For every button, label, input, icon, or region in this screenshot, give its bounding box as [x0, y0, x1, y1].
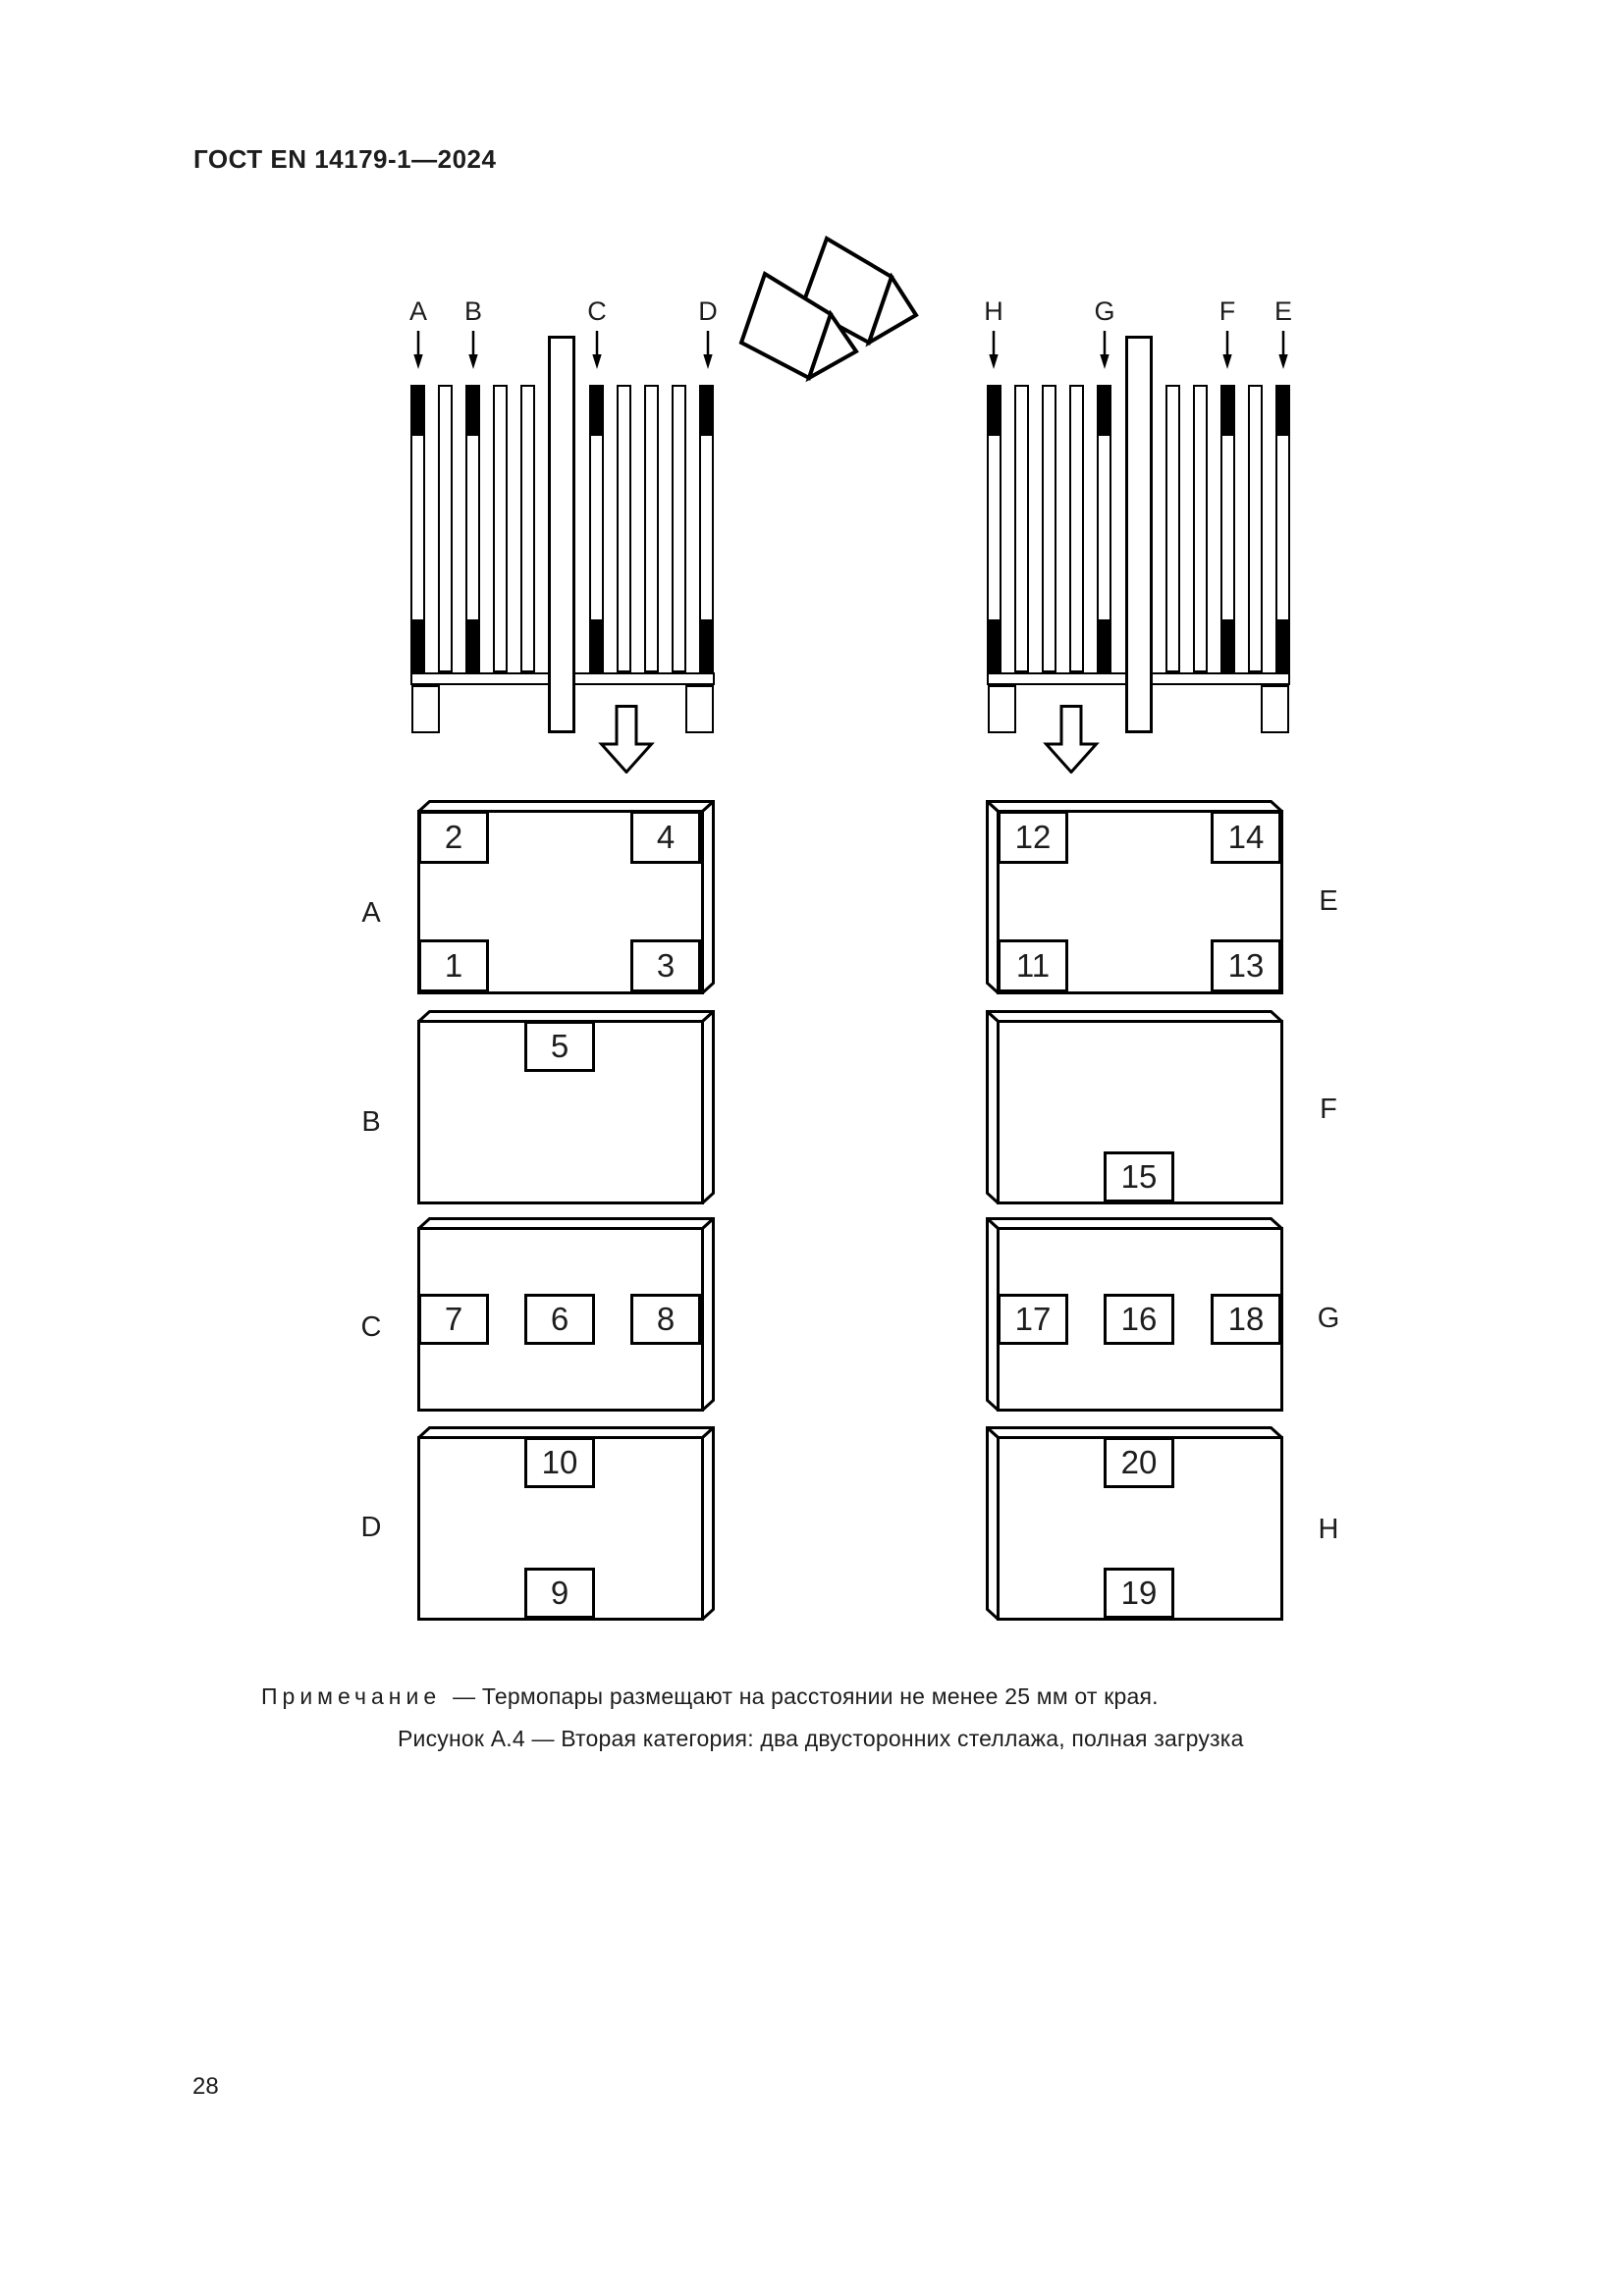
- rack-face-box-c: 7 6 8: [417, 1217, 715, 1412]
- view-direction-arrow-icon: [595, 705, 658, 774]
- thermocouple-square: 15: [1104, 1151, 1174, 1202]
- rack-leg: [1261, 685, 1289, 733]
- rack-leg: [685, 685, 714, 733]
- thermocouple-square: 10: [524, 1437, 595, 1488]
- glass-pane-bar: [493, 385, 508, 672]
- pointer-arrow-icon: [1276, 330, 1290, 369]
- rack-position-label: F: [1208, 296, 1247, 327]
- rack-position-label: C: [577, 296, 617, 327]
- pointer-arrow-icon: [411, 330, 425, 369]
- face-label: E: [1299, 886, 1358, 916]
- rack-face-box-a: 2 4 1 3: [417, 800, 715, 994]
- rack-face-box-h: 20 19: [986, 1426, 1283, 1621]
- thermocouple-square: 12: [998, 811, 1068, 864]
- glass-pane-bar-thermocouple: [1097, 385, 1111, 672]
- thermocouple-square: 5: [524, 1021, 595, 1072]
- rack-divider-post: [1125, 336, 1153, 733]
- glass-pane-bar: [644, 385, 659, 672]
- glass-pane-bar: [1042, 385, 1056, 672]
- figure-note: Примечание— Термопары размещают на расст…: [261, 1683, 1159, 1710]
- glass-pane-bar: [438, 385, 453, 672]
- rack-divider-post: [548, 336, 575, 733]
- glass-pane-bar: [1165, 385, 1180, 672]
- rack-face-box-g: 17 16 18: [986, 1217, 1283, 1412]
- glass-pane-bar-thermocouple: [410, 385, 425, 672]
- pointer-arrow-icon: [987, 330, 1001, 369]
- rack-position-label: H: [974, 296, 1013, 327]
- pointer-arrow-icon: [1220, 330, 1234, 369]
- rack-leg: [988, 685, 1016, 733]
- glass-pane-bar-thermocouple: [699, 385, 714, 672]
- thermocouple-square: 2: [418, 811, 489, 864]
- page-header: ГОСТ EN 14179-1—2024: [193, 144, 496, 175]
- glass-pane-bar: [520, 385, 535, 672]
- pointer-arrow-icon: [590, 330, 604, 369]
- thermocouple-square: 3: [630, 939, 701, 992]
- glass-pane-bar-thermocouple: [465, 385, 480, 672]
- thermocouple-square: 13: [1211, 939, 1281, 992]
- rack-position-label: B: [454, 296, 493, 327]
- rack-position-label: A: [399, 296, 438, 327]
- rack-face-box-d: 10 9: [417, 1426, 715, 1621]
- pointer-arrow-icon: [1098, 330, 1111, 369]
- face-label: F: [1299, 1095, 1358, 1124]
- rack-position-label: E: [1264, 296, 1303, 327]
- pointer-arrow-icon: [466, 330, 480, 369]
- glass-pane-bar-thermocouple: [987, 385, 1001, 672]
- thermocouple-square: 16: [1104, 1294, 1174, 1345]
- thermocouple-square: 11: [998, 939, 1068, 992]
- glass-pane-bar: [1069, 385, 1084, 672]
- glass-pane-bar: [617, 385, 631, 672]
- glass-pane-bar-thermocouple: [589, 385, 604, 672]
- face-label: H: [1299, 1515, 1358, 1544]
- pointer-arrow-icon: [701, 330, 715, 369]
- rack-face-box-b: 5: [417, 1010, 715, 1204]
- rack-leg: [411, 685, 440, 733]
- face-label: D: [342, 1513, 401, 1542]
- rack-position-label: G: [1085, 296, 1124, 327]
- thermocouple-square: 20: [1104, 1437, 1174, 1488]
- figure-caption: Рисунок А.4 — Вторая категория: два двус…: [398, 1726, 1244, 1752]
- rack-position-label: D: [688, 296, 728, 327]
- glass-pane-bar: [1014, 385, 1029, 672]
- face-label: G: [1299, 1304, 1358, 1333]
- glass-pane-bar-thermocouple: [1275, 385, 1290, 672]
- thermocouple-square: 8: [630, 1294, 701, 1345]
- glass-pane-bar-thermocouple: [1220, 385, 1235, 672]
- thermocouple-square: 17: [998, 1294, 1068, 1345]
- leaning-glass-panes-3d-icon: [727, 196, 933, 393]
- rack-face-box-e: 12 14 11 13: [986, 800, 1283, 994]
- glass-pane-bar: [1248, 385, 1263, 672]
- glass-pane-bar: [672, 385, 686, 672]
- thermocouple-square: 14: [1211, 811, 1281, 864]
- document-page: ГОСТ EN 14179-1—2024 A B C D: [0, 0, 1624, 2296]
- view-direction-arrow-icon: [1040, 705, 1103, 774]
- face-label: A: [342, 898, 401, 928]
- note-label: Примечание: [261, 1683, 441, 1709]
- page-number: 28: [192, 2073, 219, 2101]
- rack-face-box-f: 15: [986, 1010, 1283, 1204]
- glass-pane-bar: [1193, 385, 1208, 672]
- thermocouple-square: 7: [418, 1294, 489, 1345]
- face-label: C: [342, 1312, 401, 1342]
- thermocouple-square: 4: [630, 811, 701, 864]
- thermocouple-square: 9: [524, 1568, 595, 1619]
- thermocouple-square: 1: [418, 939, 489, 992]
- note-text: — Термопары размещают на расстоянии не м…: [453, 1683, 1159, 1709]
- thermocouple-square: 18: [1211, 1294, 1281, 1345]
- thermocouple-square: 6: [524, 1294, 595, 1345]
- face-label: B: [342, 1107, 401, 1137]
- thermocouple-square: 19: [1104, 1568, 1174, 1619]
